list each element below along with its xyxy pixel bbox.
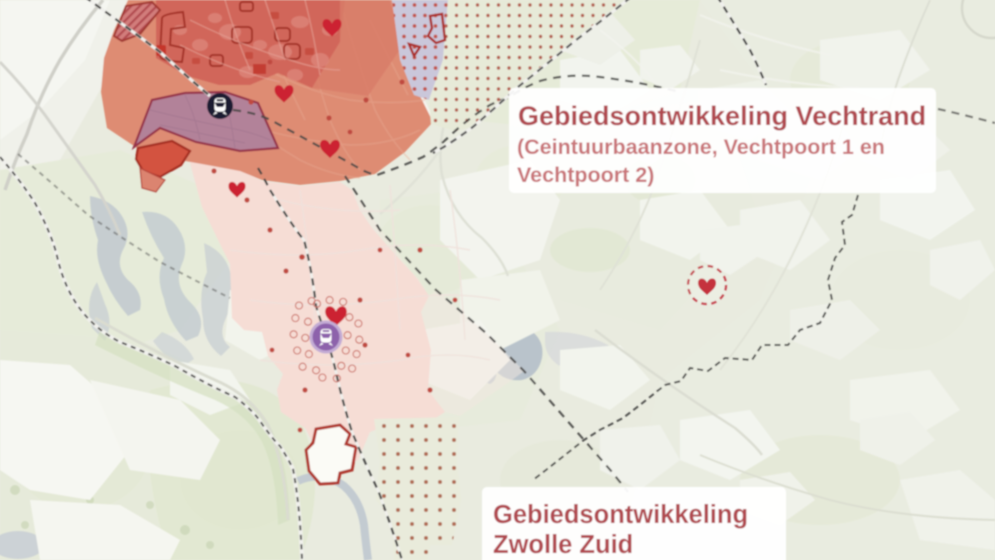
svg-text:Gebiedsontwikkeling Vechtrand: Gebiedsontwikkeling Vechtrand <box>518 101 926 131</box>
svg-text:Zwolle Zuid: Zwolle Zuid <box>493 531 633 559</box>
svg-text:Gebiedsontwikkeling: Gebiedsontwikkeling <box>493 501 748 529</box>
svg-text:(Ceintuurbaanzone, Vechtpoort: (Ceintuurbaanzone, Vechtpoort 1 en <box>517 135 885 159</box>
svg-text:Vechtpoort 2): Vechtpoort 2) <box>517 163 654 187</box>
